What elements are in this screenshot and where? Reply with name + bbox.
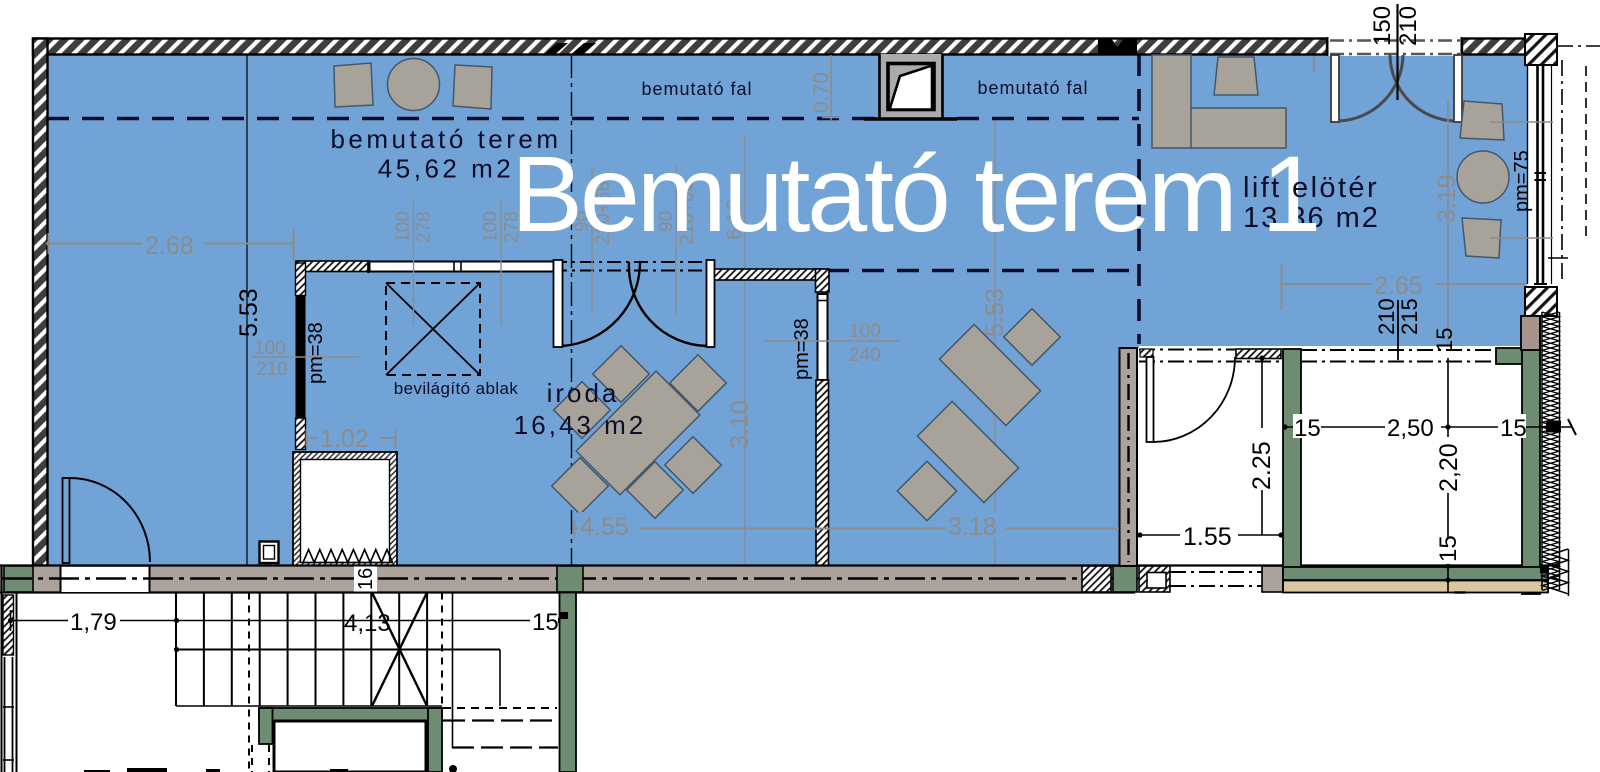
- svg-text:4,13: 4,13: [344, 610, 391, 637]
- svg-text:bemutató fal: bemutató fal: [977, 78, 1088, 98]
- svg-text:215: 215: [1397, 298, 1422, 335]
- svg-text:100: 100: [849, 321, 881, 342]
- svg-text:3.19: 3.19: [1433, 174, 1461, 223]
- svg-text:1,79: 1,79: [70, 609, 117, 636]
- svg-text:278: 278: [414, 211, 435, 243]
- svg-text:1.02: 1.02: [320, 425, 369, 453]
- svg-text:15: 15: [1432, 328, 1457, 352]
- svg-text:2.65: 2.65: [1374, 272, 1423, 300]
- svg-text:0.70: 0.70: [810, 72, 833, 113]
- svg-text:100: 100: [393, 211, 414, 243]
- svg-text:15: 15: [1435, 535, 1462, 562]
- svg-text:15: 15: [1500, 415, 1527, 442]
- svg-text:210: 210: [256, 359, 288, 380]
- svg-text:5.53: 5.53: [235, 288, 263, 337]
- svg-text:150: 150: [1369, 6, 1396, 46]
- svg-text:iroda: iroda: [547, 378, 620, 408]
- svg-text:2,50: 2,50: [1387, 415, 1434, 442]
- svg-text:16: 16: [355, 568, 377, 590]
- svg-text:15: 15: [532, 609, 559, 636]
- svg-text:Bemutató terem 1: Bemutató terem 1: [511, 133, 1318, 254]
- svg-text:15: 15: [1294, 415, 1321, 442]
- svg-text:3.18: 3.18: [948, 513, 997, 541]
- svg-text:bevilágító ablak: bevilágító ablak: [394, 379, 519, 398]
- svg-text:lift elötér: lift elötér: [1243, 172, 1379, 204]
- svg-text:45,62 m2: 45,62 m2: [378, 154, 514, 184]
- svg-text:5.53: 5.53: [981, 288, 1009, 337]
- svg-text:pm=75: pm=75: [1511, 150, 1533, 212]
- svg-text:210: 210: [1374, 298, 1399, 335]
- svg-text:100: 100: [481, 211, 502, 243]
- svg-text:240: 240: [849, 345, 881, 366]
- svg-text:pm=38: pm=38: [305, 322, 327, 384]
- svg-text:2.68: 2.68: [145, 232, 194, 260]
- svg-text:3.10: 3.10: [726, 400, 754, 449]
- svg-text:1.55: 1.55: [1183, 523, 1232, 551]
- svg-text:2,20: 2,20: [1435, 443, 1463, 492]
- svg-text:210: 210: [1395, 6, 1422, 46]
- svg-text:100: 100: [254, 338, 286, 359]
- svg-text:4.55: 4.55: [580, 513, 629, 541]
- svg-text:bemutató fal: bemutató fal: [641, 79, 752, 99]
- svg-text:pm=38: pm=38: [791, 318, 813, 380]
- svg-text:16,43 m2: 16,43 m2: [514, 410, 646, 440]
- svg-text:2.25: 2.25: [1248, 441, 1276, 490]
